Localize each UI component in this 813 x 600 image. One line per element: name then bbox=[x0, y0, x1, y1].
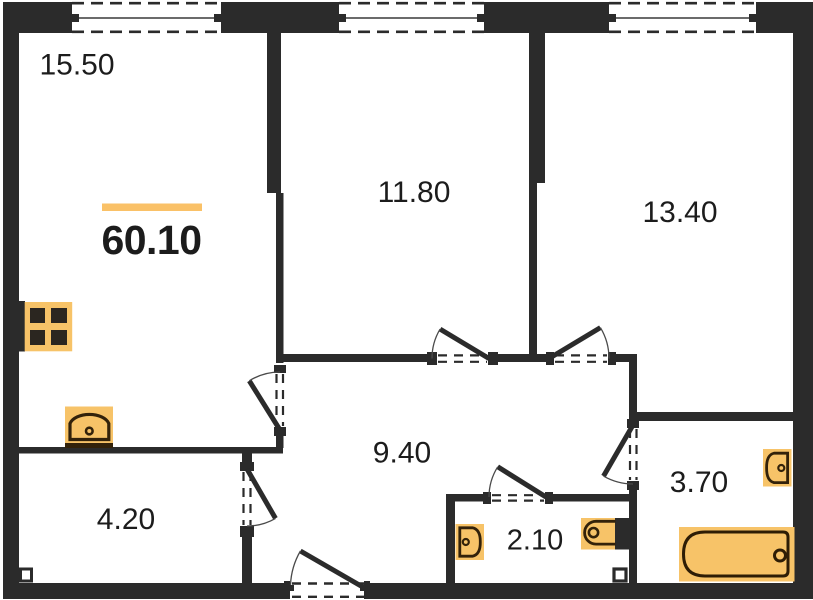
svg-text:13.40: 13.40 bbox=[642, 196, 717, 229]
svg-text:15.50: 15.50 bbox=[39, 49, 114, 82]
svg-text:2.10: 2.10 bbox=[507, 525, 563, 557]
svg-text:11.80: 11.80 bbox=[378, 176, 451, 209]
svg-text:4.20: 4.20 bbox=[97, 503, 155, 536]
svg-text:9.40: 9.40 bbox=[373, 437, 431, 470]
svg-text:60.10: 60.10 bbox=[101, 217, 201, 263]
svg-text:3.70: 3.70 bbox=[670, 466, 728, 499]
